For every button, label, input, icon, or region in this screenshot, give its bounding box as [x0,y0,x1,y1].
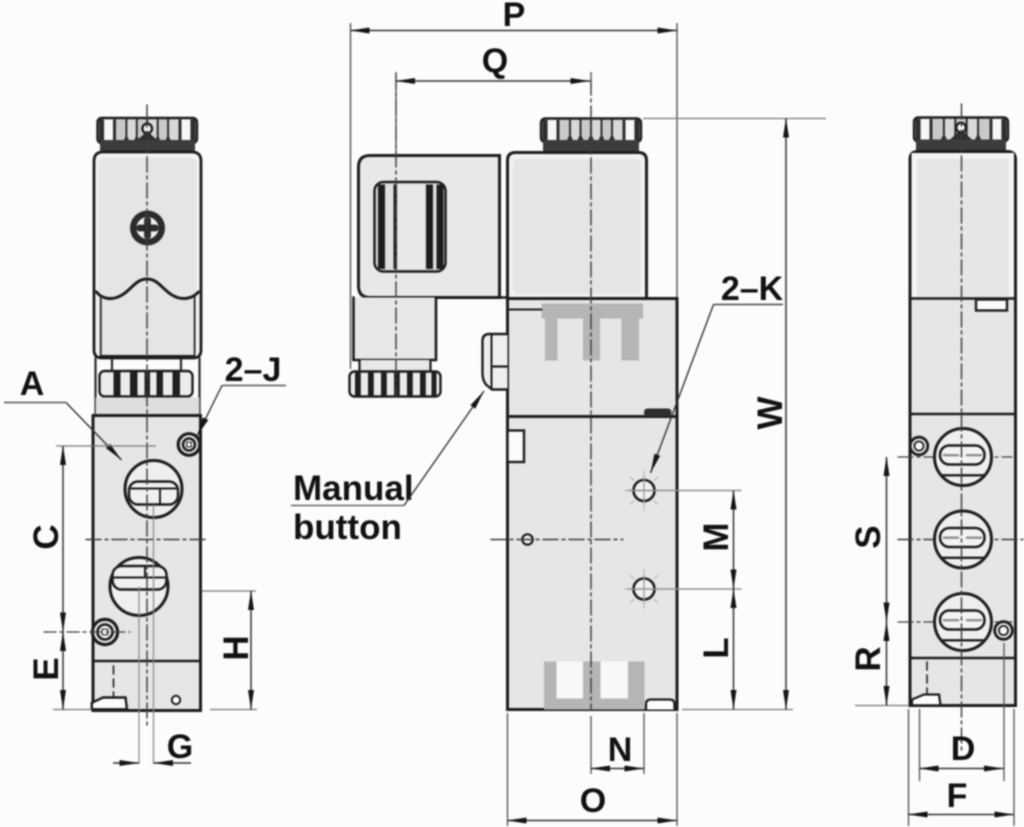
svg-text:R: R [849,646,888,671]
svg-text:F: F [947,777,968,815]
svg-text:button: button [293,508,402,547]
svg-text:A: A [20,365,45,403]
svg-text:Q: Q [482,42,508,80]
svg-text:H: H [217,635,256,660]
svg-text:W: W [751,396,790,429]
svg-text:D: D [951,730,976,768]
svg-text:G: G [167,728,193,766]
svg-text:S: S [849,525,888,548]
svg-text:C: C [27,524,66,549]
svg-text:N: N [608,731,633,769]
svg-text:2–K: 2–K [721,270,784,308]
svg-text:2–J: 2–J [225,351,282,389]
svg-text:E: E [27,657,66,680]
svg-text:P: P [503,0,526,34]
svg-text:Manual: Manual [293,469,414,508]
svg-text:O: O [580,782,606,820]
svg-text:M: M [697,522,736,551]
svg-text:L: L [697,637,736,658]
